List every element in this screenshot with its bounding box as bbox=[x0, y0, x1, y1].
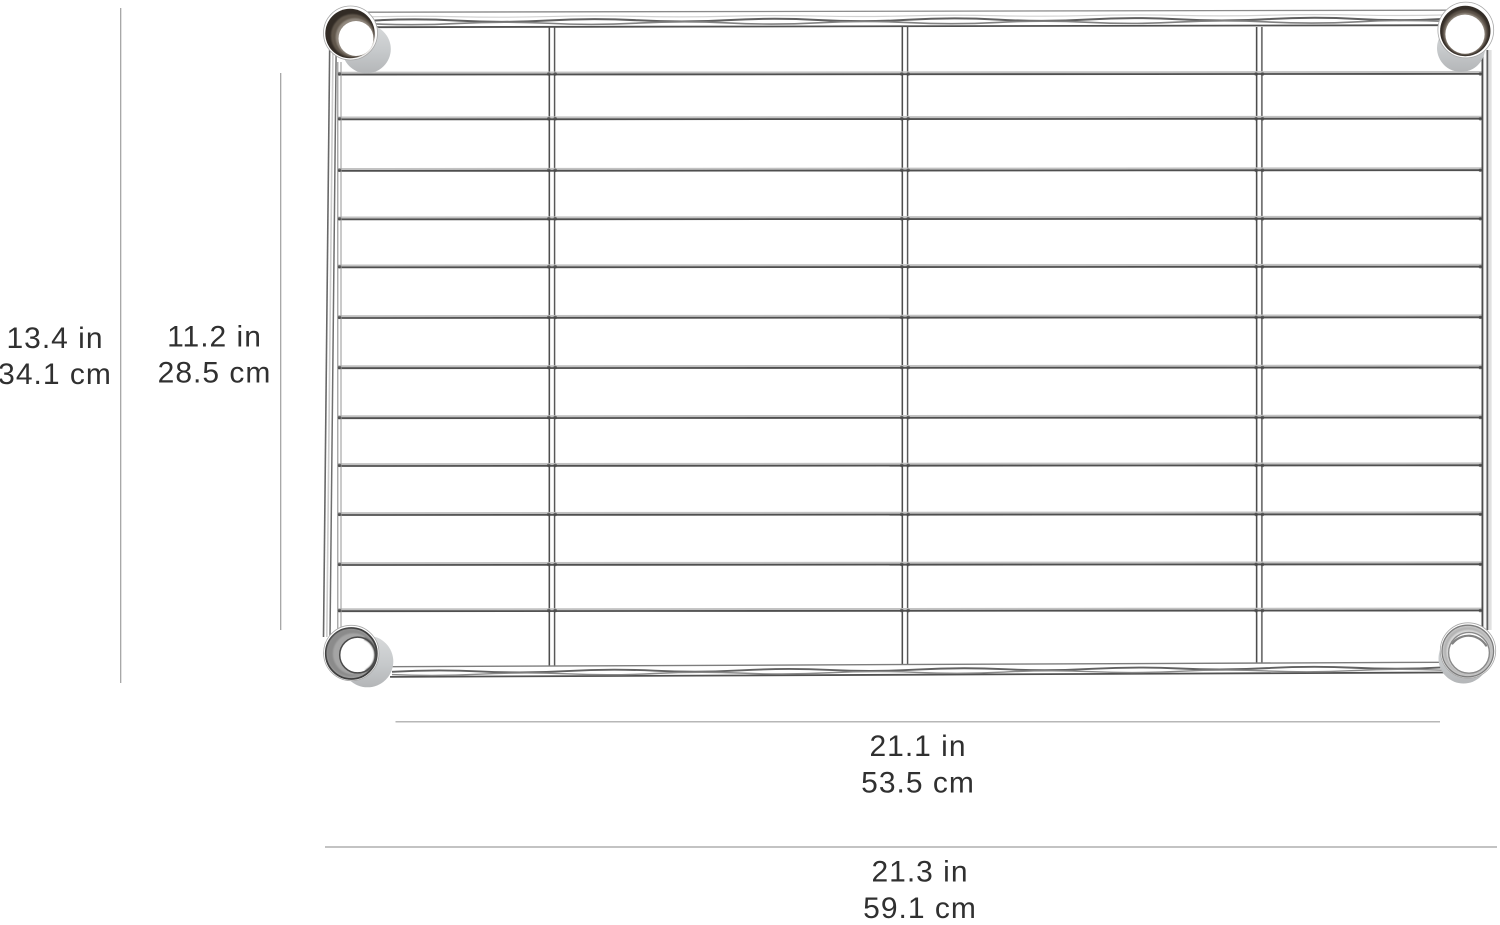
svg-text:59.1 cm: 59.1 cm bbox=[863, 892, 977, 920]
svg-text:28.5 cm: 28.5 cm bbox=[158, 357, 272, 390]
svg-text:21.3 in: 21.3 in bbox=[871, 855, 968, 888]
svg-text:34.1 cm: 34.1 cm bbox=[0, 358, 112, 391]
svg-text:21.1 in: 21.1 in bbox=[869, 730, 966, 763]
svg-text:53.5 cm: 53.5 cm bbox=[861, 766, 975, 799]
svg-text:11.2 in: 11.2 in bbox=[167, 321, 262, 354]
svg-text:13.4 in: 13.4 in bbox=[6, 322, 103, 355]
